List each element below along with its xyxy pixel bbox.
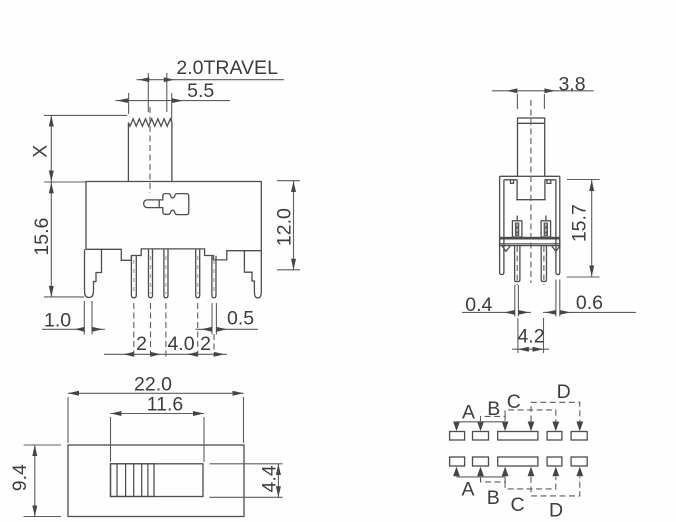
svg-text:0.5: 0.5	[227, 308, 254, 330]
svg-text:4.2: 4.2	[517, 326, 544, 348]
svg-text:C: C	[507, 391, 521, 413]
svg-text:4.0: 4.0	[167, 333, 194, 355]
svg-text:B: B	[487, 398, 500, 420]
svg-text:2: 2	[136, 333, 147, 355]
svg-text:15.6: 15.6	[31, 218, 53, 256]
svg-text:11.6: 11.6	[147, 394, 184, 416]
svg-text:A: A	[461, 479, 474, 501]
svg-text:12.0: 12.0	[274, 208, 296, 246]
svg-text:15.7: 15.7	[569, 204, 591, 242]
svg-text:2.0TRAVEL: 2.0TRAVEL	[176, 57, 278, 79]
svg-text:2: 2	[200, 333, 211, 355]
svg-text:9.4: 9.4	[9, 464, 31, 491]
svg-text:0.4: 0.4	[465, 294, 492, 316]
svg-text:4.4: 4.4	[258, 465, 280, 492]
svg-text:D: D	[549, 499, 563, 521]
svg-text:0.6: 0.6	[576, 292, 603, 314]
svg-text:5.5: 5.5	[187, 80, 214, 102]
svg-text:C: C	[511, 494, 525, 516]
svg-text:B: B	[487, 487, 500, 509]
svg-text:X: X	[30, 145, 52, 158]
svg-text:1.0: 1.0	[44, 310, 71, 332]
svg-text:A: A	[462, 402, 475, 424]
svg-text:D: D	[557, 381, 571, 403]
svg-text:3.8: 3.8	[559, 73, 586, 95]
svg-text:22.0: 22.0	[134, 373, 172, 395]
